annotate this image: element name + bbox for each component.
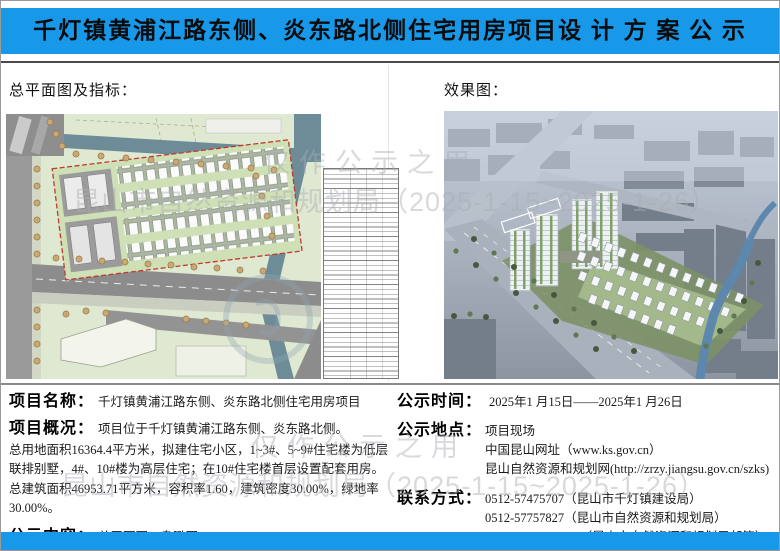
notice-location-list: 项目现场 中国昆山网址（www.ks.gov.cn） 昆山自然资源和规划网(ht… [485, 422, 769, 479]
rendering-image [444, 111, 778, 379]
project-overview-row: 项目概况： 项目位于千灯镇黄浦江路东侧、炎东路北侧。 [9, 414, 393, 438]
middle-divider [1, 383, 779, 385]
top-divider [1, 61, 779, 63]
notice-time-label: 公示时间： [397, 387, 485, 411]
notice-location-row: 公示地点： 项目现场 中国昆山网址（www.ks.gov.cn） 昆山自然资源和… [397, 416, 777, 479]
notice-location-label: 公示地点： [397, 416, 485, 440]
notice-contact-item: 0512-57757827（昆山市自然资源和规划局） [485, 509, 767, 528]
notice-location-item: 昆山自然资源和规划网(http://zrzy.jiangsu.gov.cn/sz… [485, 460, 769, 479]
notice-page: 千灯镇黄浦江路东侧、炎东路北侧住宅用房项目设 计 方 案 公 示 总平面图及指标… [0, 0, 780, 551]
notice-time-value: 2025年1 月15日——2025年1 月26日 [489, 391, 683, 410]
project-info: 项目名称： 千灯镇黄浦江路东侧、炎东路北侧住宅用房项目 项目概况： 项目位于千灯… [9, 387, 393, 549]
notice-location-item: 中国昆山网址（www.ks.gov.cn） [485, 441, 769, 460]
project-name-row: 项目名称： 千灯镇黄浦江路东侧、炎东路北侧住宅用房项目 [9, 387, 393, 411]
project-overview-detail: 总用地面积16364.4平方米，拟建住宅小区，1~3#、5~9#住宅楼为低层联排… [9, 441, 393, 519]
notice-time-row: 公示时间： 2025年1 月15日——2025年1 月26日 [397, 387, 777, 411]
site-plan-section-label: 总平面图及指标： [9, 79, 137, 100]
project-overview-label: 项目概况： [9, 414, 94, 438]
notice-contact-label: 联系方式： [397, 484, 485, 508]
project-name-label: 项目名称： [9, 387, 94, 411]
site-plan-image [6, 114, 321, 379]
indicator-table [323, 168, 399, 379]
notice-contact-item: 0512-57475707（昆山市千灯镇建设局） [485, 490, 767, 509]
page-title: 千灯镇黄浦江路东侧、炎东路北侧住宅用房项目设 计 方 案 公 示 [1, 8, 779, 54]
project-overview-intro: 项目位于千灯镇黄浦江路东侧、炎东路北侧。 [98, 418, 348, 437]
project-name-value: 千灯镇黄浦江路东侧、炎东路北侧住宅用房项目 [98, 391, 361, 410]
title-banner: 千灯镇黄浦江路东侧、炎东路北侧住宅用房项目设 计 方 案 公 示 [1, 8, 779, 54]
notice-info: 公示时间： 2025年1 月15日——2025年1 月26日 公示地点： 项目现… [397, 387, 777, 551]
rendering-section-label: 效果图： [444, 79, 508, 100]
notice-location-item: 项目现场 [485, 422, 769, 441]
footer-bar [1, 532, 779, 551]
